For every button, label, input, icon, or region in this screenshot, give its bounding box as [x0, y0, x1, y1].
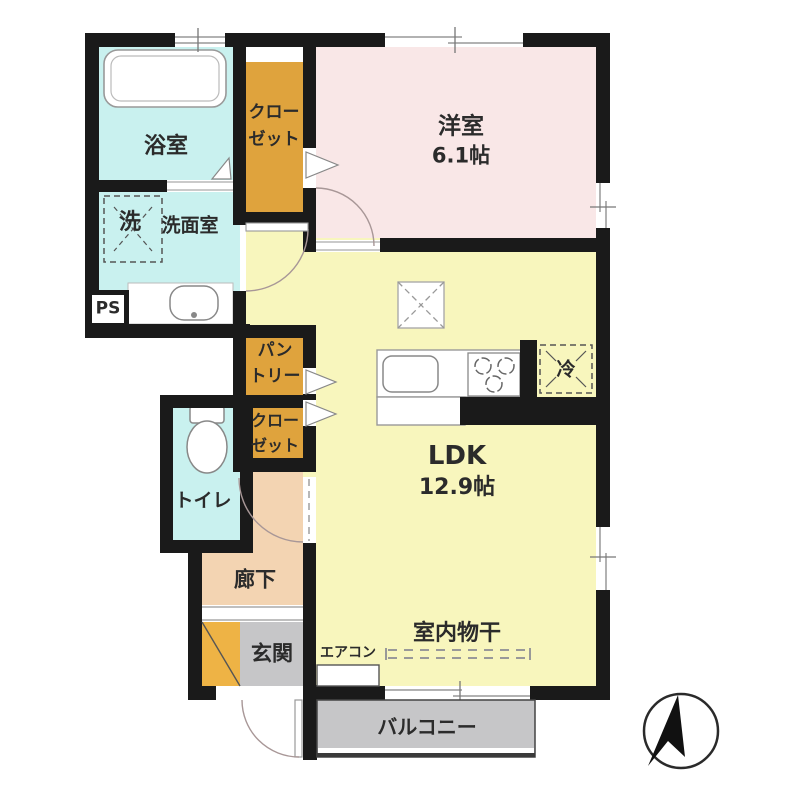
- entrance-door: [216, 686, 302, 757]
- room-label-western-room: 洋室: [438, 116, 484, 139]
- air-conditioner-unit: [317, 665, 379, 686]
- stove-icon: [468, 353, 520, 396]
- label-refrigerator: 冷: [556, 361, 575, 380]
- north-compass-icon: [644, 694, 718, 768]
- room-label-pantry-1: パン: [258, 343, 293, 360]
- room-label-closet-mid-2: ゼット: [251, 438, 299, 454]
- room-label-washroom: 洗面室: [161, 217, 218, 236]
- closet-top-shelf: [246, 47, 303, 62]
- access-hatch-icon: [398, 282, 444, 328]
- room-label-entrance: 玄関: [251, 644, 293, 665]
- hallway-floor-upper: [253, 472, 303, 557]
- room-label-ldk: LDK: [428, 443, 486, 469]
- room-label-pipe-space: PS: [96, 301, 121, 318]
- room-label-toilet: トイレ: [174, 492, 231, 511]
- room-size-western-room: 6.1帖: [432, 146, 490, 167]
- label-air-conditioner: エアコン: [320, 646, 376, 660]
- room-label-washer-space: 洗: [119, 212, 141, 234]
- room-label-closet-top-2: ゼット: [249, 132, 300, 149]
- washbasin-icon: [170, 286, 218, 320]
- room-label-closet-mid-1: クロー: [251, 413, 299, 429]
- label-balcony: バルコニー: [377, 717, 477, 737]
- kitchen-sink-icon: [383, 356, 438, 392]
- room-label-hallway: 廊下: [234, 570, 276, 591]
- toilet-icon: [187, 406, 227, 473]
- floor-plan: 浴室 洗 洗面室 PS クロー ゼット 洋室 6.1帖 パン トリー クロー ゼ…: [0, 0, 800, 800]
- label-indoor-drying: 室内物干: [413, 623, 501, 645]
- floor-plan-drawing: [0, 0, 800, 800]
- room-label-pantry-2: トリー: [250, 369, 301, 386]
- room-label-closet-top-1: クロー: [249, 105, 300, 122]
- room-size-ldk: 12.9帖: [419, 477, 495, 499]
- bathtub-icon: [104, 50, 226, 107]
- western-room-floor: [316, 47, 596, 238]
- room-label-bathroom: 浴室: [144, 136, 188, 158]
